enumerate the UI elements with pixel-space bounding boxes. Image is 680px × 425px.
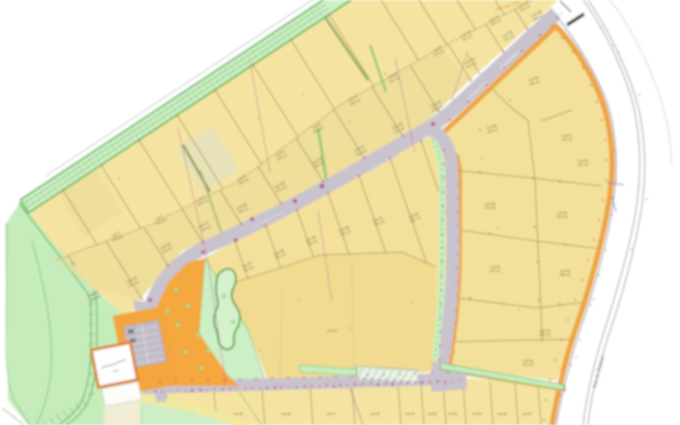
svg-text:Lot 49: Lot 49 — [405, 412, 415, 416]
svg-text:421 m2: 421 m2 — [562, 138, 573, 142]
svg-text:Lot 45: Lot 45 — [233, 412, 243, 416]
svg-text:Lot 48: Lot 48 — [370, 412, 380, 416]
svg-text:Lot 52: Lot 52 — [472, 412, 482, 416]
svg-text:Lot 50: Lot 50 — [427, 412, 437, 416]
svg-text:512 m2: 512 m2 — [523, 363, 534, 367]
svg-text:434 m2: 434 m2 — [485, 206, 496, 210]
svg-text:447 m2: 447 m2 — [578, 163, 589, 167]
svg-text:486 m2: 486 m2 — [560, 273, 571, 277]
svg-text:Lot 53: Lot 53 — [497, 412, 507, 416]
svg-text:Lot 34: Lot 34 — [327, 329, 338, 333]
svg-text:460 m2: 460 m2 — [557, 215, 568, 219]
svg-text:Lot 54: Lot 54 — [522, 412, 532, 416]
svg-text:473 m2: 473 m2 — [490, 269, 501, 273]
svg-text:Lot 46: Lot 46 — [281, 412, 291, 416]
svg-text:Lot 51: Lot 51 — [448, 412, 458, 416]
svg-text:Lot 47: Lot 47 — [326, 412, 336, 416]
svg-text:499 m2: 499 m2 — [540, 333, 551, 337]
